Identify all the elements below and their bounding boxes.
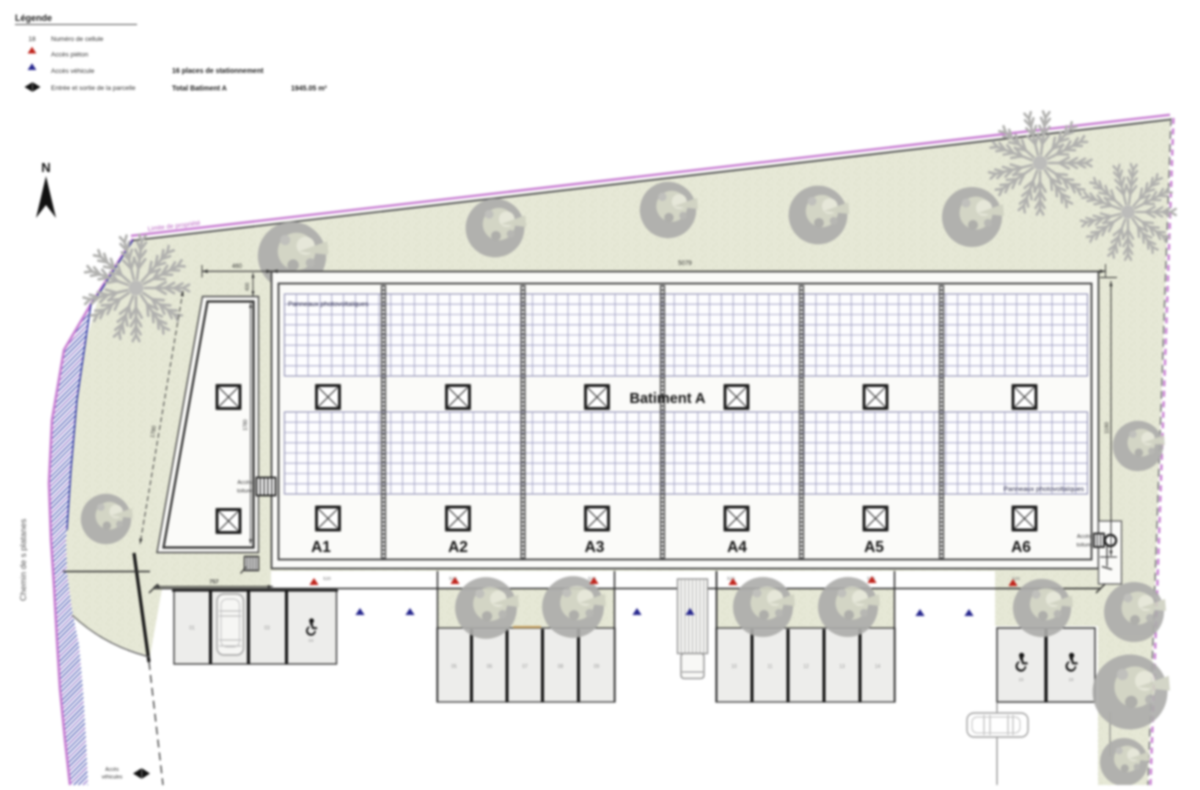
svg-text:Accès: Accès <box>1077 534 1092 540</box>
svg-text:520: 520 <box>323 576 331 581</box>
svg-text:13: 13 <box>839 664 845 670</box>
svg-text:véhicules: véhicules <box>102 775 123 781</box>
svg-text:06: 06 <box>487 664 493 670</box>
svg-text:Panneaux photovoltaïques: Panneaux photovoltaïques <box>288 301 369 308</box>
svg-text:757: 757 <box>209 580 218 586</box>
svg-text:1180: 1180 <box>1105 422 1111 434</box>
svg-text:Total Batiment A: Total Batiment A <box>172 86 227 93</box>
svg-text:18: 18 <box>28 36 36 43</box>
svg-text:A5: A5 <box>864 539 884 556</box>
svg-text:toiture: toiture <box>237 489 252 495</box>
svg-text:Panneaux photovoltaïques: Panneaux photovoltaïques <box>1004 486 1085 493</box>
svg-text:5079: 5079 <box>678 260 692 267</box>
svg-text:A6: A6 <box>1011 539 1031 556</box>
svg-text:10: 10 <box>731 664 737 670</box>
svg-text:16: 16 <box>1068 677 1074 682</box>
svg-text:15: 15 <box>1018 677 1024 682</box>
svg-text:Accès véhicule: Accès véhicule <box>51 68 95 75</box>
svg-text:04: 04 <box>308 638 314 643</box>
svg-text:Accès piéton: Accès piéton <box>51 52 89 59</box>
svg-text:16 places de stationnement: 16 places de stationnement <box>172 68 264 75</box>
svg-text:Batiment A: Batiment A <box>630 391 707 407</box>
svg-text:07: 07 <box>522 664 528 670</box>
svg-text:1780: 1780 <box>243 419 249 430</box>
svg-text:400: 400 <box>245 282 251 291</box>
svg-text:Accès: Accès <box>237 480 252 486</box>
svg-text:03: 03 <box>264 626 270 632</box>
svg-text:A1: A1 <box>311 539 331 556</box>
svg-text:05: 05 <box>451 664 457 670</box>
svg-text:01: 01 <box>189 626 195 632</box>
svg-text:09: 09 <box>594 664 600 670</box>
svg-text:11: 11 <box>767 664 772 670</box>
svg-text:Entrée et sortie de la parcell: Entrée et sortie de la parcelle <box>51 85 136 92</box>
svg-text:A3: A3 <box>585 539 605 556</box>
svg-text:1945.05 m²: 1945.05 m² <box>291 86 327 93</box>
svg-text:A4: A4 <box>727 539 747 556</box>
svg-text:toiture: toiture <box>1077 543 1092 549</box>
svg-text:Numéro de cellule: Numéro de cellule <box>51 36 104 43</box>
svg-text:12: 12 <box>803 664 809 670</box>
svg-text:A2: A2 <box>448 539 468 556</box>
svg-text:460: 460 <box>232 264 243 270</box>
svg-text:Chemin de s platanes: Chemin de s platanes <box>18 519 28 601</box>
svg-text:Légende: Légende <box>15 13 52 23</box>
svg-text:14: 14 <box>875 664 881 670</box>
svg-text:Accès: Accès <box>105 767 119 773</box>
svg-text:N: N <box>41 160 50 175</box>
svg-text:08: 08 <box>558 664 564 670</box>
